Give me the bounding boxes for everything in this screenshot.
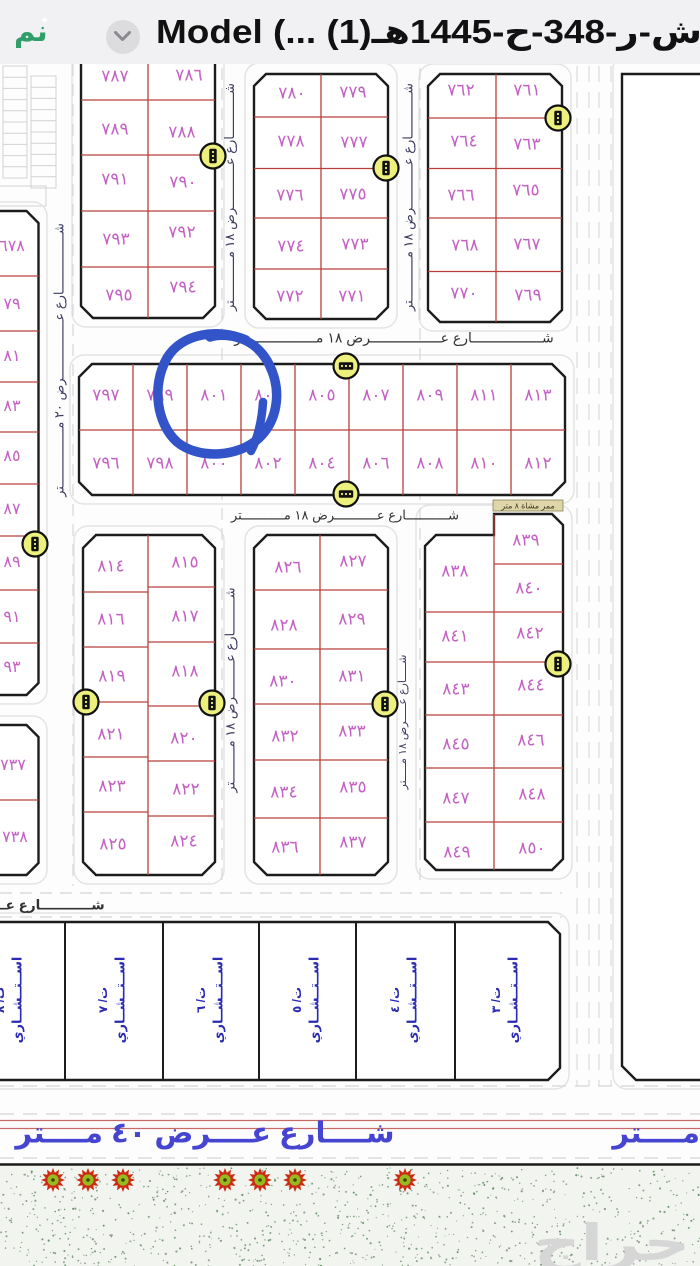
svg-text:٧٨٧: ٧٨٧ bbox=[101, 66, 128, 85]
svg-text:٨٣١: ٨٣١ bbox=[338, 666, 365, 685]
svg-text:٨٥: ٨٥ bbox=[3, 448, 20, 465]
svg-text:٨٢٠: ٨٢٠ bbox=[170, 728, 197, 747]
svg-text:ت/ ٥: ت/ ٥ bbox=[290, 987, 304, 1013]
svg-text:٧٨٠: ٧٨٠ bbox=[278, 83, 305, 102]
svg-text:٨٠٧: ٨٠٧ bbox=[362, 385, 389, 404]
svg-text:٨٢٨: ٨٢٨ bbox=[270, 615, 297, 634]
svg-text:٨٢٤: ٨٢٤ bbox=[170, 831, 197, 850]
svg-text:٨١٥: ٨١٥ bbox=[171, 552, 198, 571]
svg-text:٨٢١: ٨٢١ bbox=[97, 724, 124, 743]
svg-text:اســتــشــاري: اســتــشــاري bbox=[505, 957, 520, 1044]
svg-text:٨٢٢: ٨٢٢ bbox=[172, 779, 199, 798]
svg-text:٨٣٨: ٨٣٨ bbox=[441, 561, 468, 580]
svg-text:٨٤٨: ٨٤٨ bbox=[518, 784, 545, 803]
svg-text:٧٩١: ٧٩١ bbox=[101, 169, 128, 188]
svg-text:٧٩٥: ٧٩٥ bbox=[105, 285, 132, 304]
svg-text:٨٣٥: ٨٣٥ bbox=[339, 777, 366, 796]
svg-text:حراج: حراج bbox=[534, 1216, 690, 1266]
svg-text:٨٣٩: ٨٣٩ bbox=[512, 530, 539, 549]
svg-text:٨١٢: ٨١٢ bbox=[524, 453, 551, 472]
svg-text:٦٧٨: ٦٧٨ bbox=[0, 238, 25, 255]
svg-text:٨٢٦: ٨٢٦ bbox=[274, 557, 301, 576]
svg-text:ت/ ٧: ت/ ٧ bbox=[96, 987, 110, 1013]
svg-text:اســتــشــاري: اســتــشــاري bbox=[210, 957, 225, 1044]
svg-text:٧٧٤: ٧٧٤ bbox=[277, 236, 304, 255]
svg-text:٧٩: ٧٩ bbox=[3, 296, 20, 313]
svg-text:٧٦٧: ٧٦٧ bbox=[513, 234, 540, 253]
svg-text:٨٧: ٨٧ bbox=[3, 501, 21, 518]
svg-text:٨٣٤: ٨٣٤ bbox=[270, 782, 297, 801]
svg-text:ت/ ٣: ت/ ٣ bbox=[489, 987, 503, 1013]
svg-text:٧٩٦: ٧٩٦ bbox=[92, 453, 119, 472]
svg-text:٧٦٩: ٧٦٩ bbox=[514, 285, 541, 304]
svg-text:ت/ ٨: ت/ ٨ bbox=[0, 987, 7, 1013]
svg-text:٨٤٦: ٨٤٦ bbox=[517, 730, 544, 749]
svg-text:٨١٧: ٨١٧ bbox=[171, 606, 198, 625]
svg-text:ت/ ٦: ت/ ٦ bbox=[194, 987, 208, 1013]
svg-text:٨١٠: ٨١٠ bbox=[470, 453, 497, 472]
svg-text:٧٩٨: ٧٩٨ bbox=[146, 453, 173, 472]
svg-text:٨٠٩: ٨٠٩ bbox=[416, 385, 443, 404]
svg-text:٧٨٨: ٧٨٨ bbox=[168, 122, 195, 141]
svg-text:٨٢٧: ٨٢٧ bbox=[339, 551, 366, 570]
svg-text:شـــــــــــارع عـــــــــــرض: شـــــــــــارع عـــــــــــرض ١٨ مـــــ… bbox=[230, 507, 459, 523]
svg-text:٧٧٢: ٧٧٢ bbox=[276, 286, 303, 305]
svg-text:٨٤٧: ٨٤٧ bbox=[442, 788, 469, 807]
svg-text:اســتــشــاري: اســتــشــاري bbox=[9, 957, 24, 1044]
svg-text:٨١٩: ٨١٩ bbox=[98, 666, 125, 685]
svg-text:٧٩٣: ٧٩٣ bbox=[102, 229, 129, 248]
svg-text:٧٩٤: ٧٩٤ bbox=[169, 277, 196, 296]
svg-text:٨١: ٨١ bbox=[3, 348, 20, 365]
svg-text:٧٦٤: ٧٦٤ bbox=[450, 131, 477, 150]
svg-text:٨٩: ٨٩ bbox=[3, 554, 20, 571]
svg-text:٧٩٧: ٧٩٧ bbox=[92, 385, 119, 404]
svg-text:٧٧٠: ٧٧٠ bbox=[450, 283, 477, 302]
svg-text:٧٦٦: ٧٦٦ bbox=[447, 185, 474, 204]
svg-text:٨٣٧: ٨٣٧ bbox=[339, 832, 366, 851]
svg-text:٨١٣: ٨١٣ bbox=[524, 385, 551, 404]
svg-text:ت/ ٤: ت/ ٤ bbox=[388, 987, 402, 1013]
svg-text:شــــارع عــــرض ٤٠ مــــتر: شــــارع عــــرض ٤٠ مــــتر bbox=[13, 1118, 394, 1150]
svg-text:اســتــشــاري: اســتــشــاري bbox=[112, 957, 127, 1044]
svg-text:٨١٨: ٨١٨ bbox=[171, 661, 198, 680]
svg-text:٧٦٢: ٧٦٢ bbox=[447, 80, 474, 99]
svg-text:٨٤٤: ٨٤٤ bbox=[517, 675, 544, 694]
svg-text:٨٠٤: ٨٠٤ bbox=[308, 453, 335, 472]
svg-text:شـــــــــــارع عـــــــــــرض: شـــــــــــارع عـــــــــــرض ١٨ مـــــ… bbox=[400, 83, 416, 312]
svg-text:٨٤١: ٨٤١ bbox=[441, 626, 468, 645]
svg-text:٨٣٣: ٨٣٣ bbox=[338, 721, 365, 740]
svg-text:٨٤٠: ٨٤٠ bbox=[515, 578, 542, 597]
svg-text:٧٨٩: ٧٨٩ bbox=[101, 119, 128, 138]
svg-text:٧٦٨: ٧٦٨ bbox=[451, 235, 478, 254]
svg-text:٩١: ٩١ bbox=[3, 609, 20, 626]
svg-text:٧٧١: ٧٧١ bbox=[338, 286, 365, 305]
svg-text:٧٩٢: ٧٩٢ bbox=[168, 222, 195, 241]
svg-text:٧٨٦: ٧٨٦ bbox=[175, 65, 202, 84]
svg-text:٨٤٢: ٨٤٢ bbox=[516, 623, 543, 642]
svg-text:٧٣٨: ٧٣٨ bbox=[2, 829, 28, 846]
svg-text:٩٣: ٩٣ bbox=[3, 659, 21, 676]
svg-text:٨٠٨: ٨٠٨ bbox=[416, 453, 443, 472]
svg-text:٨٤٣: ٨٤٣ bbox=[442, 679, 469, 698]
svg-text:٧٧٧: ٧٧٧ bbox=[340, 132, 367, 151]
svg-text:٨٠١: ٨٠١ bbox=[200, 385, 227, 404]
svg-text:٧٣٧: ٧٣٧ bbox=[0, 757, 26, 774]
svg-text:٨٥٠: ٨٥٠ bbox=[518, 838, 545, 857]
svg-text:٨٢٥: ٨٢٥ bbox=[99, 834, 126, 853]
svg-text:٨٣٢: ٨٣٢ bbox=[271, 726, 298, 745]
svg-text:٧٦٥: ٧٦٥ bbox=[512, 180, 539, 199]
svg-text:شـــــــــارع عـــــــــرض ١٨: شـــــــــارع عـــــــــرض ١٨ مـــــــــ… bbox=[222, 587, 238, 793]
svg-text:٧٩٠: ٧٩٠ bbox=[169, 172, 196, 191]
svg-text:٨١١: ٨١١ bbox=[470, 385, 497, 404]
svg-text:شـــــــــــارع عـــــــــــرض: شـــــــــــارع عـــــــــــرض ١٨ مـــــ… bbox=[222, 83, 238, 312]
svg-text:٧٧٨: ٧٧٨ bbox=[277, 131, 304, 150]
svg-text:اســتــشــاري: اســتــشــاري bbox=[404, 957, 419, 1044]
svg-text:٧٧٩: ٧٧٩ bbox=[339, 82, 366, 101]
svg-text:شــــارع عــــرض ٤٠ مــــتر: شــــارع عــــرض ٤٠ مــــتر bbox=[610, 1118, 700, 1150]
svg-text:٧٦٣: ٧٦٣ bbox=[513, 134, 540, 153]
svg-text:ممر مشاة ٨ متر: ممر مشاة ٨ متر bbox=[500, 502, 554, 511]
svg-text:٧٧٣: ٧٧٣ bbox=[341, 234, 368, 253]
svg-text:٨٣٠: ٨٣٠ bbox=[269, 671, 296, 690]
svg-text:٨٠٥: ٨٠٥ bbox=[308, 385, 335, 404]
svg-text:٨٢٩: ٨٢٩ bbox=[338, 609, 365, 628]
svg-text:٨٤٥: ٨٤٥ bbox=[442, 734, 469, 753]
svg-text:٨٣: ٨٣ bbox=[3, 398, 21, 415]
svg-text:٧٦١: ٧٦١ bbox=[513, 80, 540, 99]
svg-text:٨١٤: ٨١٤ bbox=[97, 556, 124, 575]
svg-text:٨٠٦: ٨٠٦ bbox=[362, 453, 389, 472]
svg-text:٨٤٩: ٨٤٩ bbox=[443, 842, 470, 861]
svg-text:٨٠٢: ٨٠٢ bbox=[254, 453, 281, 472]
svg-text:٧٧٦: ٧٧٦ bbox=[276, 185, 303, 204]
svg-text:شـــــارع عـــــرض ١٨ مـــــتر: شـــــارع عـــــرض ١٨ مـــــتر bbox=[397, 655, 409, 791]
svg-text:٧٧٥: ٧٧٥ bbox=[339, 184, 366, 203]
svg-text:٨١٦: ٨١٦ bbox=[97, 609, 124, 628]
svg-text:شـــــــــــــــارع عـــــــــ: شـــــــــــــــارع عـــــــــــــــرض ٢… bbox=[51, 223, 67, 498]
svg-text:شـــــــــــارع عـــــــــــرض: شـــــــــــارع عـــــــــــرض ١٥ مـــــ… bbox=[0, 898, 105, 913]
svg-text:اســتــشــاري: اســتــشــاري bbox=[306, 957, 321, 1044]
svg-text:٨٣٦: ٨٣٦ bbox=[271, 837, 298, 856]
svg-text:٨٢٣: ٨٢٣ bbox=[98, 776, 125, 795]
svg-text:شـــــــــــــــــارع عـــــــ: شـــــــــــــــــارع عـــــــــــــــــ… bbox=[233, 330, 553, 347]
